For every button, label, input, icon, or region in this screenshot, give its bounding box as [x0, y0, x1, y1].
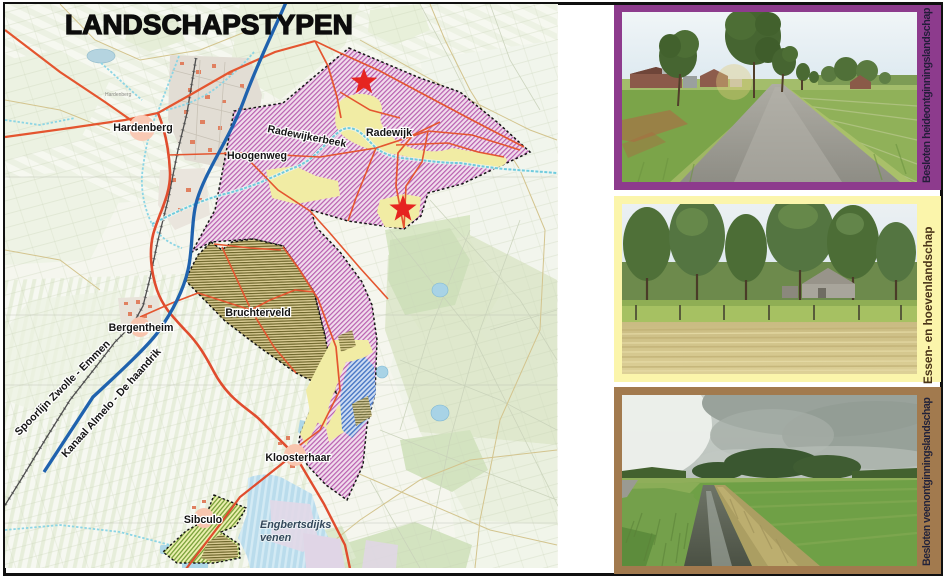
- svg-text:Bergentheim: Bergentheim: [109, 322, 174, 334]
- svg-text:Hardenberg: Hardenberg: [105, 92, 132, 98]
- svg-text:LANDSCHAPSTYPEN: LANDSCHAPSTYPEN: [65, 9, 353, 40]
- svg-text:Hoogenweg: Hoogenweg: [227, 150, 287, 162]
- svg-text:venen: venen: [260, 532, 292, 544]
- svg-text:Sibculo: Sibculo: [184, 514, 223, 526]
- svg-text:Kloosterhaar: Kloosterhaar: [265, 452, 330, 464]
- svg-text:Hardenberg: Hardenberg: [113, 122, 172, 134]
- svg-text:Bruchterveld: Bruchterveld: [225, 307, 290, 319]
- svg-text:Engbertsdijks: Engbertsdijks: [260, 519, 331, 531]
- svg-text:Radewijk: Radewijk: [366, 127, 412, 139]
